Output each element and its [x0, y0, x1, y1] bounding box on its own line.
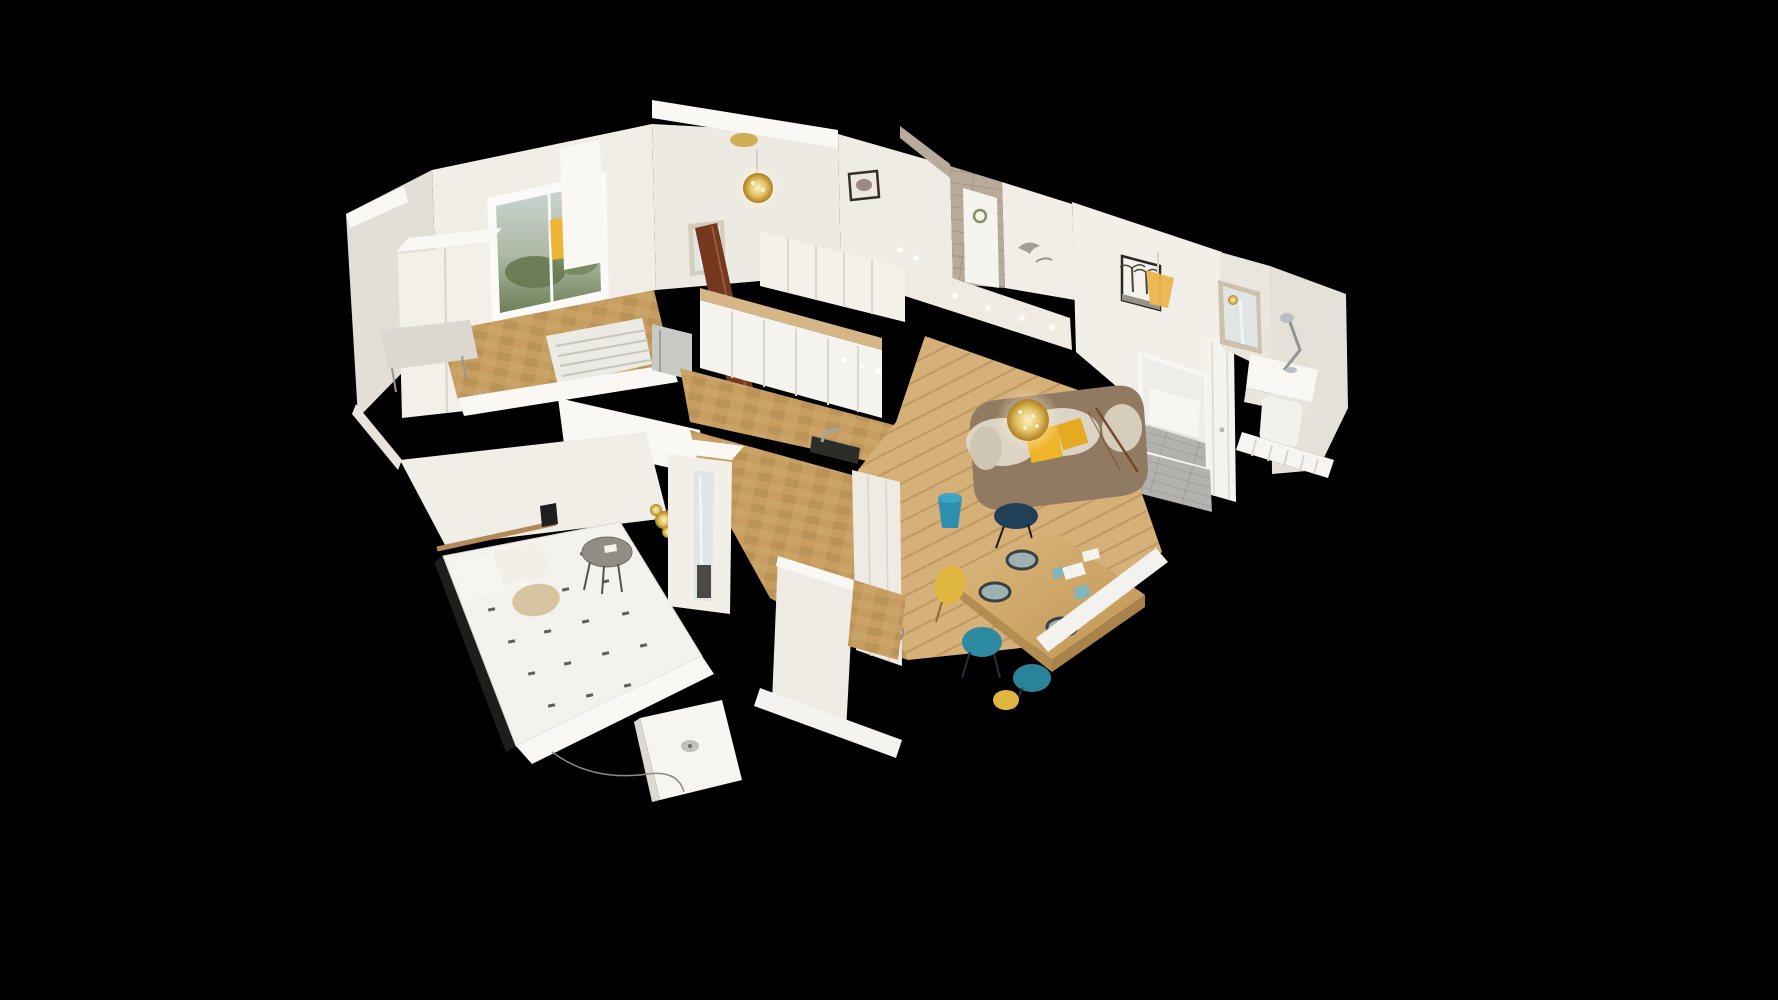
- nook-mirror: [1218, 280, 1262, 354]
- tall-white-door: [1206, 338, 1236, 502]
- shower-glass-panel: [963, 188, 999, 288]
- blue-bucket: [938, 493, 962, 528]
- tall-cabinet: [560, 140, 604, 270]
- gold-ornament: [730, 133, 758, 147]
- wall-mounted-panel: [540, 503, 558, 527]
- sparkle-chandelier: [996, 388, 1060, 452]
- framed-print-small: [849, 171, 879, 200]
- sofa: [966, 385, 1148, 510]
- dollhouse-scene[interactable]: [0, 0, 1778, 1000]
- yellow-chair: [993, 690, 1019, 710]
- dollhouse-viewport[interactable]: [0, 0, 1778, 1000]
